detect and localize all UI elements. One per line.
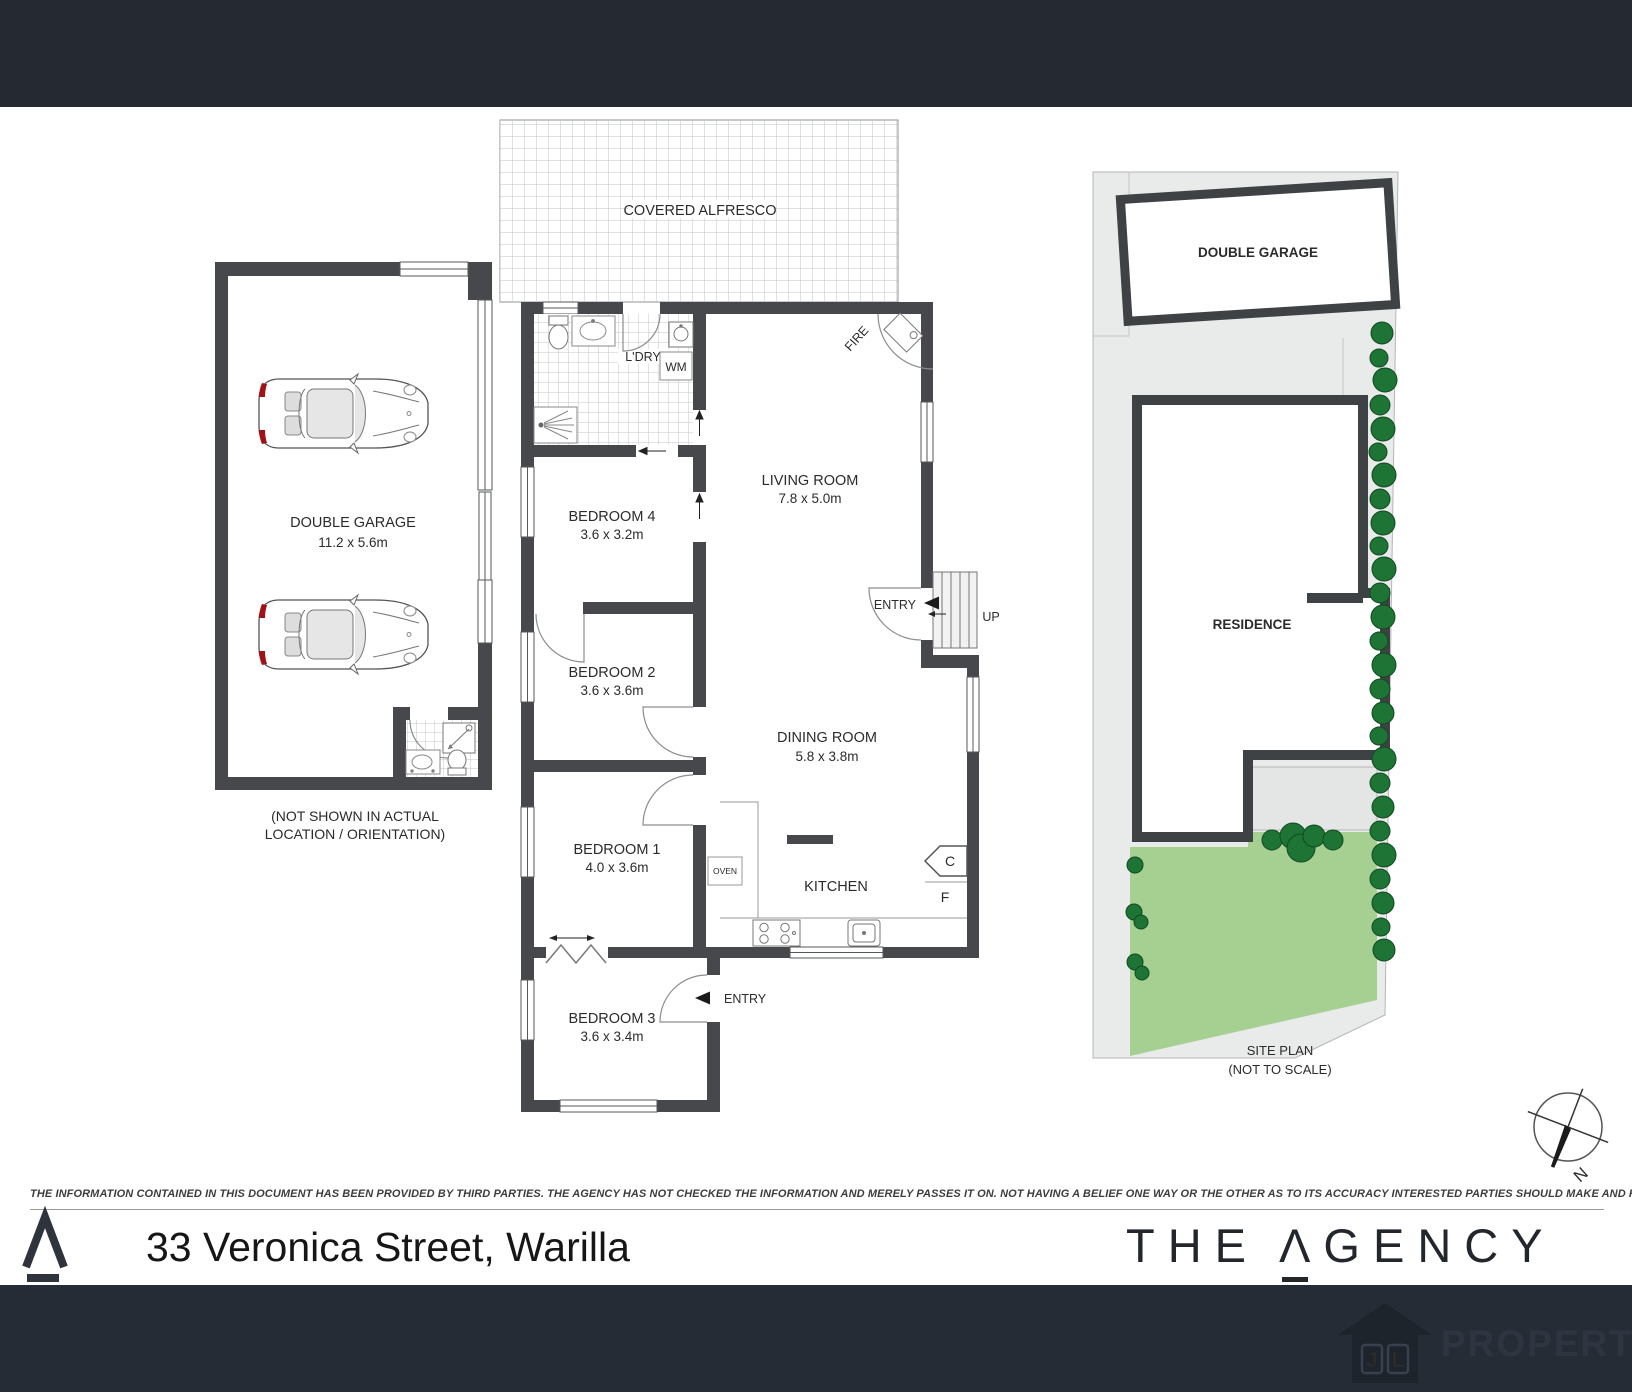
- dining-name: DINING ROOM: [777, 730, 877, 746]
- jl-letter-j: J: [1366, 1349, 1378, 1372]
- brand-the: THE: [1126, 1218, 1259, 1273]
- covered-alfresco: COVERED ALFRESCO: [500, 120, 898, 302]
- fireplace: FIRE: [842, 313, 933, 369]
- washing-machine: WM: [660, 352, 692, 380]
- bed2-dims: 3.6 x 3.6m: [580, 683, 643, 698]
- vanity: [572, 316, 615, 346]
- garage-vanity: [406, 750, 440, 774]
- laundry-bathroom: L'DRY WM: [534, 314, 693, 445]
- oven-label: OVEN: [713, 866, 737, 876]
- site-patio: [1248, 767, 1377, 830]
- garage-toilet: [448, 750, 466, 775]
- oven: OVEN: [708, 857, 742, 885]
- jl-property-label: PROPERTY: [1441, 1304, 1632, 1384]
- living-name: LIVING ROOM: [762, 473, 859, 489]
- bed2-name: BEDROOM 2: [568, 665, 655, 681]
- stove: [753, 920, 800, 946]
- alfresco-label: COVERED ALFRESCO: [623, 203, 776, 219]
- garage-bathroom: [406, 720, 478, 777]
- bed3-dims: 3.6 x 3.4m: [580, 1029, 643, 1044]
- siteplan-caption-1: SITE PLAN: [1247, 1043, 1313, 1058]
- bed4-dims: 3.6 x 3.2m: [580, 527, 643, 542]
- folding-door: [546, 935, 608, 963]
- cupboard-label: C: [945, 853, 955, 869]
- garage-note-2: LOCATION / ORIENTATION): [265, 826, 445, 842]
- shower: [534, 407, 577, 443]
- sink: [848, 920, 880, 946]
- kitchen-fittings: OVEN C F: [708, 802, 967, 946]
- compass: N: [1480, 1040, 1630, 1190]
- car-1: [259, 374, 428, 453]
- jl-house-icon: J L: [1338, 1303, 1433, 1385]
- jl-property-watermark: J L PROPERTY: [1338, 1303, 1632, 1385]
- garage-svg: DOUBLE GARAGE 11.2 x 5.6m (NOT SHOWN IN …: [200, 255, 500, 855]
- site-residence-label: RESIDENCE: [1213, 617, 1292, 632]
- fridge-label: F: [941, 889, 950, 905]
- fire-label: FIRE: [842, 323, 871, 354]
- jl-letter-l: L: [1392, 1349, 1405, 1372]
- floorplan-svg: COVERED ALFRESCO: [488, 112, 1008, 1122]
- north-label: N: [1570, 1164, 1592, 1186]
- agency-wordmark: THE ΛGENCY: [1126, 1218, 1556, 1273]
- cupboard: C F: [925, 846, 967, 905]
- laundry-tub: [669, 322, 693, 347]
- living-dims: 7.8 x 5.0m: [778, 491, 841, 506]
- garage-note-1: (NOT SHOWN IN ACTUAL: [271, 808, 439, 824]
- site-garage: DOUBLE GARAGE: [1120, 183, 1395, 322]
- siteplan-caption-2: (NOT TO SCALE): [1228, 1062, 1331, 1077]
- wm-label: WM: [665, 360, 686, 374]
- entry-top-label: ENTRY: [874, 598, 917, 612]
- brand-gency: GENCY: [1323, 1218, 1555, 1273]
- siteplan-svg: DOUBLE GARAGE RESIDENCE: [1080, 165, 1420, 1085]
- bed4-name: BEDROOM 4: [568, 509, 655, 525]
- stairs: UP: [928, 572, 1000, 648]
- garage-shower: [443, 723, 475, 753]
- agency-mark-icon: [21, 1210, 71, 1285]
- floorplan-document: COVERED ALFRESCO: [0, 0, 1632, 1392]
- bed3-name: BEDROOM 3: [568, 1011, 655, 1027]
- toilet: [549, 316, 568, 349]
- site-garage-label: DOUBLE GARAGE: [1198, 245, 1318, 260]
- laundry-label: L'DRY: [625, 350, 661, 364]
- up-label: UP: [982, 610, 999, 624]
- kitchen-label: KITCHEN: [804, 879, 868, 895]
- bed1-dims: 4.0 x 3.6m: [585, 860, 648, 875]
- garage-dims: 11.2 x 5.6m: [318, 535, 388, 550]
- disclaimer-text: THE INFORMATION CONTAINED IN THIS DOCUME…: [30, 1188, 1608, 1200]
- entry-bottom-label: ENTRY: [724, 992, 767, 1006]
- dining-dims: 5.8 x 3.8m: [795, 749, 858, 764]
- car-2: [259, 595, 428, 674]
- bed1-name: BEDROOM 1: [573, 842, 660, 858]
- garage-name: DOUBLE GARAGE: [290, 515, 416, 531]
- entry-top: ENTRY: [874, 597, 939, 613]
- header-band: [0, 0, 1632, 107]
- entry-bottom: ENTRY: [695, 992, 767, 1007]
- divider-rule: [30, 1209, 1604, 1210]
- brand-a-glyph: Λ: [1279, 1218, 1323, 1273]
- garage-windows: [400, 262, 492, 643]
- property-address: 33 Veronica Street, Warilla: [146, 1224, 630, 1271]
